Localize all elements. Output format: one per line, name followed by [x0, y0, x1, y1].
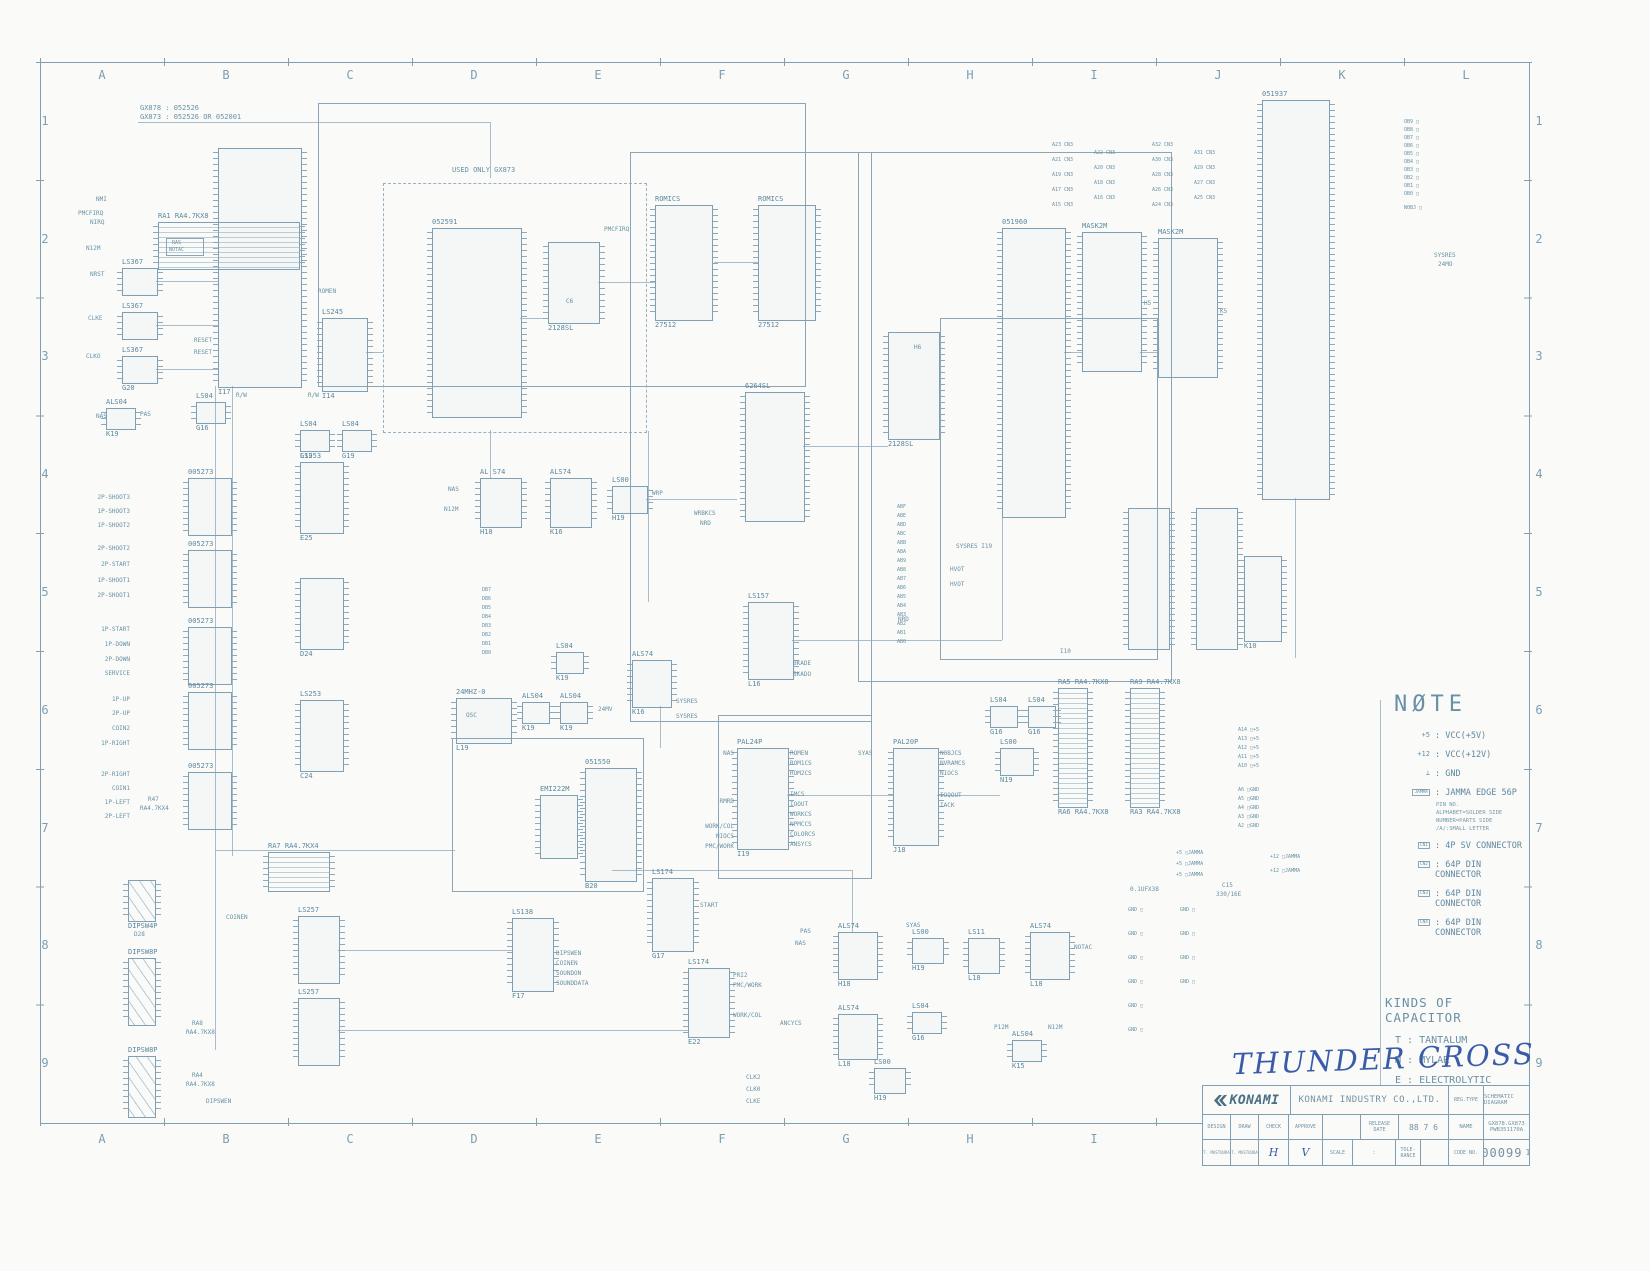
signal-label: NIOCS — [940, 770, 958, 777]
signal-label: RESET — [194, 349, 212, 356]
grid-ref: 2 — [36, 180, 54, 298]
signal-label: 24MV — [598, 706, 612, 713]
signal-label: BKADE — [793, 660, 811, 667]
ic-label: ALS74 — [550, 468, 571, 476]
ic-emi222m — [540, 795, 578, 859]
ic-label: ALS04 — [1012, 1030, 1033, 1038]
ic-sublabel: H18 — [838, 980, 851, 988]
ic-label: LS174 — [652, 868, 673, 876]
signal-label: 2P-SHOOT2 — [34, 545, 130, 552]
note-item: JAMMA: JAMMA EDGE 56P — [1388, 788, 1526, 798]
ic-label: ALS74 — [838, 922, 859, 930]
ic-label: LS157 — [748, 592, 769, 600]
ic-005273 — [188, 692, 232, 750]
signal-label: 2P-LEFT — [34, 813, 130, 820]
pin-list: GND □ GND □ GND □ GND □ — [1180, 898, 1195, 994]
ic-label: LS04 — [342, 420, 359, 428]
ic-005273 — [188, 627, 232, 685]
signal-label: ROM1CS — [790, 760, 812, 767]
ic-sublabel: DIPSW4P — [128, 922, 158, 930]
signal-label: OSC — [466, 712, 477, 719]
signal-label: IOQOUT — [940, 792, 962, 799]
ic-sublabel: G19 — [342, 452, 355, 460]
signal-label: PMCFIRQ — [78, 210, 103, 217]
grid-ref: 7 — [1530, 769, 1548, 887]
ic-ls174 — [688, 968, 730, 1038]
wire — [215, 850, 455, 851]
ic-sublabel: G16 — [1028, 728, 1041, 736]
ic-sublabel: F17 — [512, 992, 525, 1000]
signal-label: 1P-SHOOT1 — [34, 577, 130, 584]
ic-005273 — [188, 478, 232, 536]
pin-list: A22 CN3 A20 CN3 A18 CN3 A16 CN3 — [1094, 146, 1115, 206]
konami-logo: KONAMI — [1203, 1086, 1291, 1114]
code-no-label: CODE NO. — [1449, 1140, 1484, 1165]
ic-d24 — [300, 578, 344, 650]
grid-ref: F — [660, 68, 784, 84]
ic-part — [1128, 508, 1170, 650]
signal-label: C15 — [1222, 882, 1233, 889]
note-item: ⊥: GND — [1388, 769, 1526, 779]
ic-label: LS00 — [874, 1058, 891, 1066]
ic-label: LS04 — [300, 420, 317, 428]
ic-label: ROMICS — [758, 195, 783, 203]
grid-ref: 8 — [36, 886, 54, 1004]
reg-type-label: REG.TYPE — [1449, 1086, 1484, 1114]
check-label: CHECK — [1259, 1115, 1289, 1139]
ic-ls257 — [298, 998, 340, 1066]
ic-als74 — [838, 1014, 878, 1060]
grid-ref: 8 — [1530, 886, 1548, 1004]
signal-label: C6 — [566, 298, 573, 305]
ic-sublabel: K15 — [1012, 1062, 1025, 1070]
grid-ref: B — [164, 1132, 288, 1148]
ic-051937 — [1262, 100, 1330, 500]
ic-label: 052591 — [432, 218, 457, 226]
ic-label: EMI222M — [540, 785, 570, 793]
ic-sublabel: RA3 RA4.7KX8 — [1130, 808, 1181, 816]
signal-label: BKADO — [793, 671, 811, 678]
grid-ref: 4 — [1530, 415, 1548, 533]
grid-ref: 3 — [1530, 298, 1548, 416]
ic-sublabel: G20 — [122, 384, 135, 392]
grid-ref: 9 — [36, 1004, 54, 1122]
ic-label: PAL24P — [737, 738, 762, 746]
grid-ref: 5 — [1530, 533, 1548, 651]
signal-label: 24MO — [1438, 261, 1452, 268]
signal-label: ANCYCS — [780, 1020, 802, 1027]
ic-sublabel: L16 — [748, 680, 761, 688]
konami-chevron-icon — [1214, 1095, 1227, 1106]
ic-als04 — [106, 408, 136, 430]
signal-label: 1P-SHOOT3 — [34, 508, 130, 515]
signal-label: RA8 — [192, 1020, 203, 1027]
grid-ref: E — [536, 1132, 660, 1148]
ic-ra5-ra4-7kx8 — [1058, 688, 1088, 808]
signal-label: NMI — [96, 196, 107, 203]
signal-label: NRD — [700, 520, 711, 527]
ic-label: PAL20P — [893, 738, 918, 746]
ic-label: 24MHZ-0 — [456, 688, 486, 696]
ic-sublabel: C24 — [300, 772, 313, 780]
ic-label: RA9 RA4.7KX8 — [1130, 678, 1181, 686]
signal-label: NOTAC — [169, 247, 184, 253]
note-item: CN2: 64P DIN CONNECTOR — [1388, 860, 1526, 880]
ic-label: ALS04 — [106, 398, 127, 406]
wire — [1380, 700, 1381, 1085]
ic-sublabel: H19 — [912, 964, 925, 972]
ic-label: LS367 — [122, 258, 143, 266]
ic-label: LS04 — [196, 392, 213, 400]
signal-label: IACK — [940, 802, 954, 809]
signal-label: CLKO — [86, 353, 100, 360]
ic-052591 — [432, 228, 522, 418]
signal-label: DIPSWEN — [556, 950, 581, 957]
grid-ref: D — [412, 68, 536, 84]
signal-label: RMRD — [638, 798, 734, 805]
signal-label: 1P-SHOOT2 — [34, 522, 130, 529]
signal-label: RAS — [172, 240, 181, 246]
signal-label: COIN2 — [34, 725, 130, 732]
signal-label: N12M — [444, 506, 458, 513]
grid-ref: 3 — [36, 298, 54, 416]
ic-sublabel: G16 — [912, 1034, 925, 1042]
pin-list: GND □ GND □ GND □ GND □ GND □ GND □ — [1128, 898, 1143, 1042]
signal-label: I10 — [1060, 648, 1071, 655]
blank-cell — [1323, 1115, 1361, 1139]
signal-label: 2P-SHOOT3 — [34, 494, 130, 501]
ic-ls00 — [612, 486, 648, 514]
signal-label: CLK2 — [746, 1074, 760, 1081]
grid-ref: L — [1404, 68, 1528, 84]
wire — [338, 950, 512, 951]
note-item: CN1: 4P SV CONNECTOR — [1388, 841, 1526, 851]
grid-ref: F — [660, 1132, 784, 1148]
pin-list: A14 □+5 A13 □+5 A12 □+5 A11 □+5 A10 □+5 — [1238, 726, 1259, 771]
signal-label: NAS — [638, 750, 734, 757]
draw-label: DRAW — [1231, 1115, 1259, 1139]
ic-pal20p — [893, 748, 939, 846]
name-label: NAME — [1449, 1115, 1484, 1139]
ic-label: LS00 — [912, 928, 929, 936]
ic-ls04 — [342, 430, 372, 452]
ic-label: LS174 — [688, 958, 709, 966]
signal-label: IOOUT — [790, 801, 808, 808]
ic-als04 — [522, 702, 550, 724]
ic-als04 — [560, 702, 588, 724]
ic-ls138 — [512, 918, 554, 992]
ic-romics — [758, 205, 816, 321]
check-signature: H — [1259, 1140, 1289, 1165]
signal-label: WORKCS — [790, 811, 812, 818]
ic-sublabel: E25 — [300, 534, 313, 542]
signal-label: N0BJCS — [940, 750, 962, 757]
ic-ls245 — [322, 318, 368, 392]
ic-sublabel: H18 — [480, 528, 493, 536]
signal-label: SYSRES — [1434, 252, 1456, 259]
ic-pal24p — [737, 748, 789, 850]
ic-sublabel: RA6 RA4.7KX8 — [1058, 808, 1109, 816]
ic-label: RA5 RA4.7KX8 — [1058, 678, 1109, 686]
signal-label: SERVICE — [34, 670, 130, 677]
grid-ref: 2 — [1530, 180, 1548, 298]
signal-label: N12M — [86, 245, 100, 252]
ic-ls00 — [912, 938, 944, 964]
ic-sublabel: J18 — [893, 846, 906, 854]
ic-ls04 — [912, 1012, 942, 1034]
signal-label: 1P-UP — [34, 696, 130, 703]
signal-label: COINEN — [556, 960, 578, 967]
ic-label: 051960 — [1002, 218, 1027, 226]
signal-label: 2P-UP — [34, 710, 130, 717]
ic-sublabel: H19 — [612, 514, 625, 522]
grid-ref: 6 — [1530, 651, 1548, 769]
ic-ls00 — [1000, 748, 1034, 776]
release-date-value: 88 7 6 — [1399, 1115, 1449, 1139]
signal-label: NIOCS — [638, 833, 734, 840]
ic-romics — [655, 205, 713, 321]
wire — [338, 1030, 688, 1031]
capacitor-title: KINDS OF CAPACITOR — [1385, 995, 1525, 1025]
signal-label: PMCFIRQ — [604, 226, 629, 233]
grid-ref: B — [164, 68, 288, 84]
grid-ref: I — [1032, 1132, 1156, 1148]
ic-sublabel: 27512 — [758, 321, 779, 329]
ic-sublabel: K16 — [550, 528, 563, 536]
grid-ref: C — [288, 1132, 412, 1148]
signal-label: K5 — [1220, 308, 1227, 315]
ic-label: AL S74 — [480, 468, 505, 476]
grid-ref: G — [784, 68, 908, 84]
title-block: KONAMI KONAMI INDUSTRY CO.,LTD. REG.TYPE… — [1202, 1085, 1530, 1166]
grid-ref: 4 — [36, 415, 54, 533]
signal-label: 1P-LEFT — [34, 799, 130, 806]
design-value: T. MASTUURA — [1203, 1140, 1231, 1165]
signal-label: SOUNDON — [556, 970, 581, 977]
signal-label: 2P-SHOOT1 — [34, 592, 130, 599]
ic-sublabel: I17 — [218, 388, 231, 396]
ic-dipsw8p — [128, 958, 156, 1026]
ic-ls257 — [298, 916, 340, 984]
grid-ref: E — [536, 68, 660, 84]
grid-numbers-right: 123456789 — [1530, 62, 1548, 1122]
ic-k10 — [1244, 556, 1282, 642]
signal-label: D28 — [134, 931, 145, 938]
signal-label: 2P-START — [34, 561, 130, 568]
note-item-detail: PIN NO. ALPHABET=SOLDER SIDE NUMBER=PART… — [1436, 801, 1526, 833]
pin-list: A31 CN3 A29 CN3 A27 CN3 A25 CN3 — [1194, 146, 1215, 206]
ic-label: ROMICS — [655, 195, 680, 203]
ic-label: 051550 — [585, 758, 610, 766]
ic-label: ALS74 — [1030, 922, 1051, 930]
signal-label: COIN1 — [34, 785, 130, 792]
signal-label: SYSRES — [676, 713, 698, 720]
ic-ls04 — [196, 402, 226, 424]
approve-label: APPROVE — [1289, 1115, 1323, 1139]
signal-label: WRBKCS — [694, 510, 716, 517]
ic-sublabel: B20 — [585, 882, 598, 890]
ic-sublabel: I14 — [322, 392, 335, 400]
ic-sublabel: N19 — [1000, 776, 1013, 784]
ic-ls367 — [122, 356, 158, 384]
signal-label: R/W — [236, 392, 247, 399]
ic-051550 — [585, 768, 637, 882]
ic-als74 — [632, 660, 672, 708]
ic-ls367 — [122, 312, 158, 340]
grid-ref: J — [1156, 68, 1280, 84]
signal-label: ROMEN — [318, 288, 336, 295]
signal-label: H6 — [914, 344, 921, 351]
ic-005273 — [188, 772, 232, 830]
pin-list: DB7 DB6 DB5 DB4 DB3 DB2 DB1 DB0 — [482, 586, 491, 658]
ic-als04 — [1012, 1040, 1042, 1062]
pin-list: +5 □JAMMA +5 □JAMMA +5 □JAMMA — [1176, 848, 1203, 881]
pin-list: A6 □GND A5 □GND A4 □GND A3 □GND A2 □GND — [1238, 786, 1259, 831]
ic-sublabel: K19 — [106, 430, 119, 438]
signal-label: 1P-START — [34, 626, 130, 633]
ic-ls04 — [1028, 706, 1056, 728]
signal-label: HVOT — [950, 581, 964, 588]
signal-label: SYAS — [858, 750, 872, 757]
signal-label: CLK0 — [746, 1086, 760, 1093]
signal-label: ROM2CS — [790, 770, 812, 777]
grid-ref: 1 — [36, 62, 54, 180]
blank-cell — [1421, 1140, 1449, 1165]
ic-label: 005273 — [188, 540, 213, 548]
note-item: CN3: 64P DIN CONNECTOR — [1388, 889, 1526, 909]
grid-ref: G — [784, 1132, 908, 1148]
grid-ref: 1 — [1530, 62, 1548, 180]
ic-ls11 — [968, 938, 1000, 974]
grid-ref: H — [908, 1132, 1032, 1148]
signal-label: PAS — [140, 411, 151, 418]
ic-sublabel: H19 — [874, 1094, 887, 1102]
note-item: CN4: 64P DIN CONNECTOR — [1388, 918, 1526, 938]
name-value: GX878.GX873PWB351170A — [1484, 1115, 1529, 1139]
signal-label: NAS — [448, 486, 459, 493]
grid-ref: H — [908, 68, 1032, 84]
ic-label: LS11 — [968, 928, 985, 936]
ic-sublabel: K19 — [560, 724, 573, 732]
grid-ref: C — [288, 68, 412, 84]
signal-label: SYSRES — [676, 698, 698, 705]
ic-label: LS253 — [300, 690, 321, 698]
code-no-value: 1000991/4 — [1484, 1140, 1529, 1165]
ic-ls367 — [122, 268, 158, 296]
signal-label: 2P-DOWN — [34, 656, 130, 663]
ic-sublabel: L18 — [838, 1060, 851, 1068]
signal-label: RA4.7KX8 — [186, 1029, 215, 1036]
ic-sublabel: G17 — [652, 952, 665, 960]
ic-als74 — [838, 932, 878, 980]
draw-value: T. MASTUURA — [1231, 1140, 1259, 1165]
pin-list: A32 CN3 A30 CN3 A28 CN3 A26 CN3 A24 CN3 — [1152, 138, 1173, 213]
note-item: +12: VCC(+12V) — [1388, 750, 1526, 760]
ic-sublabel: G16 — [990, 728, 1003, 736]
note-title: NØTE — [1394, 692, 1526, 717]
scale-label: SCALE — [1323, 1140, 1353, 1165]
ic-label: LS138 — [512, 908, 533, 916]
ic-label: DIPSW8P — [128, 948, 158, 956]
release-date-label: RELEASEDATE — [1361, 1115, 1399, 1139]
ic-ls00 — [874, 1068, 906, 1094]
ic-sublabel: K19 — [556, 674, 569, 682]
ic-sublabel: K19 — [522, 724, 535, 732]
ic-ls04 — [990, 706, 1018, 728]
signal-label: 1P-RIGHT — [34, 740, 130, 747]
ic-label: ALS04 — [560, 692, 581, 700]
signal-label: RA4.7KX8 — [186, 1081, 215, 1088]
signal-label: SYSRES I19 — [956, 543, 992, 550]
signal-label: COLORCS — [790, 831, 815, 838]
ic-label: LS367 — [122, 302, 143, 310]
ic-ls174 — [652, 878, 694, 952]
ic-mask2m — [1082, 232, 1142, 372]
ic-label: LS04 — [556, 642, 573, 650]
signal-label: NVRAMCS — [940, 760, 965, 767]
ic-sublabel: 27512 — [655, 321, 676, 329]
ic-als74 — [1030, 932, 1070, 980]
ic-ra7-ra4-7kx4 — [268, 852, 330, 892]
ic-al-s74 — [480, 478, 522, 528]
ic-label: MASK2M — [1158, 228, 1183, 236]
signal-label: RA4 — [192, 1072, 203, 1079]
signal-label: GX873 : 052526 OR 052001 — [140, 113, 241, 121]
signal-label: ROMEN — [790, 750, 808, 757]
signal-label: P12M — [994, 1024, 1008, 1031]
ic-label: LS00 — [1000, 738, 1017, 746]
ic-sublabel: D24 — [300, 650, 313, 658]
grid-letters-top: ABCDEFGHIJKL — [40, 68, 1528, 84]
grid-ticks-top — [40, 58, 1528, 66]
ic-label: RA7 RA4.7KX4 — [268, 842, 319, 850]
ic-label: LS257 — [298, 988, 319, 996]
ic-dipsw8p — [128, 1056, 156, 1118]
signal-label: 1P-DOWN — [34, 641, 130, 648]
grid-ref: D — [412, 1132, 536, 1148]
ic-label: LS04 — [912, 1002, 929, 1010]
signal-label: 2P-RIGHT — [34, 771, 130, 778]
ic-sublabel: L19 — [456, 744, 469, 752]
grid-ref: I — [1032, 68, 1156, 84]
ic-label: ALS74 — [838, 1004, 859, 1012]
ic-ra9-ra4-7kx8 — [1130, 688, 1160, 808]
ic-label: DIPSW8P — [128, 1046, 158, 1054]
ic-label: 005273 — [188, 762, 213, 770]
ic-sublabel: L18 — [968, 974, 981, 982]
note-item: +5: VCC(+5V) — [1388, 731, 1526, 741]
signal-label: COINEN — [226, 914, 248, 921]
ic-label: MASK2M — [1082, 222, 1107, 230]
signal-label: PMC/WORK — [733, 982, 762, 989]
signal-label: PAS — [800, 928, 811, 935]
approve-signature: V — [1289, 1140, 1323, 1165]
wire — [1295, 498, 1296, 658]
ic-sublabel: G16 — [196, 424, 209, 432]
signal-label: WRP — [652, 490, 663, 497]
ic-24mhz-0 — [456, 698, 512, 744]
ic-label: ALS04 — [522, 692, 543, 700]
signal-label: SYAS — [906, 922, 920, 929]
ic-ls253 — [300, 462, 344, 534]
ic-label: RA1 RA4.7KX8 — [158, 212, 209, 220]
ic-005273 — [188, 550, 232, 608]
ic-ls04 — [300, 430, 330, 452]
ic-sublabel: L18 — [1030, 980, 1043, 988]
ic-sublabel: I19 — [737, 850, 750, 858]
grid-ref: K — [1280, 68, 1404, 84]
signal-label: HVOT — [950, 566, 964, 573]
